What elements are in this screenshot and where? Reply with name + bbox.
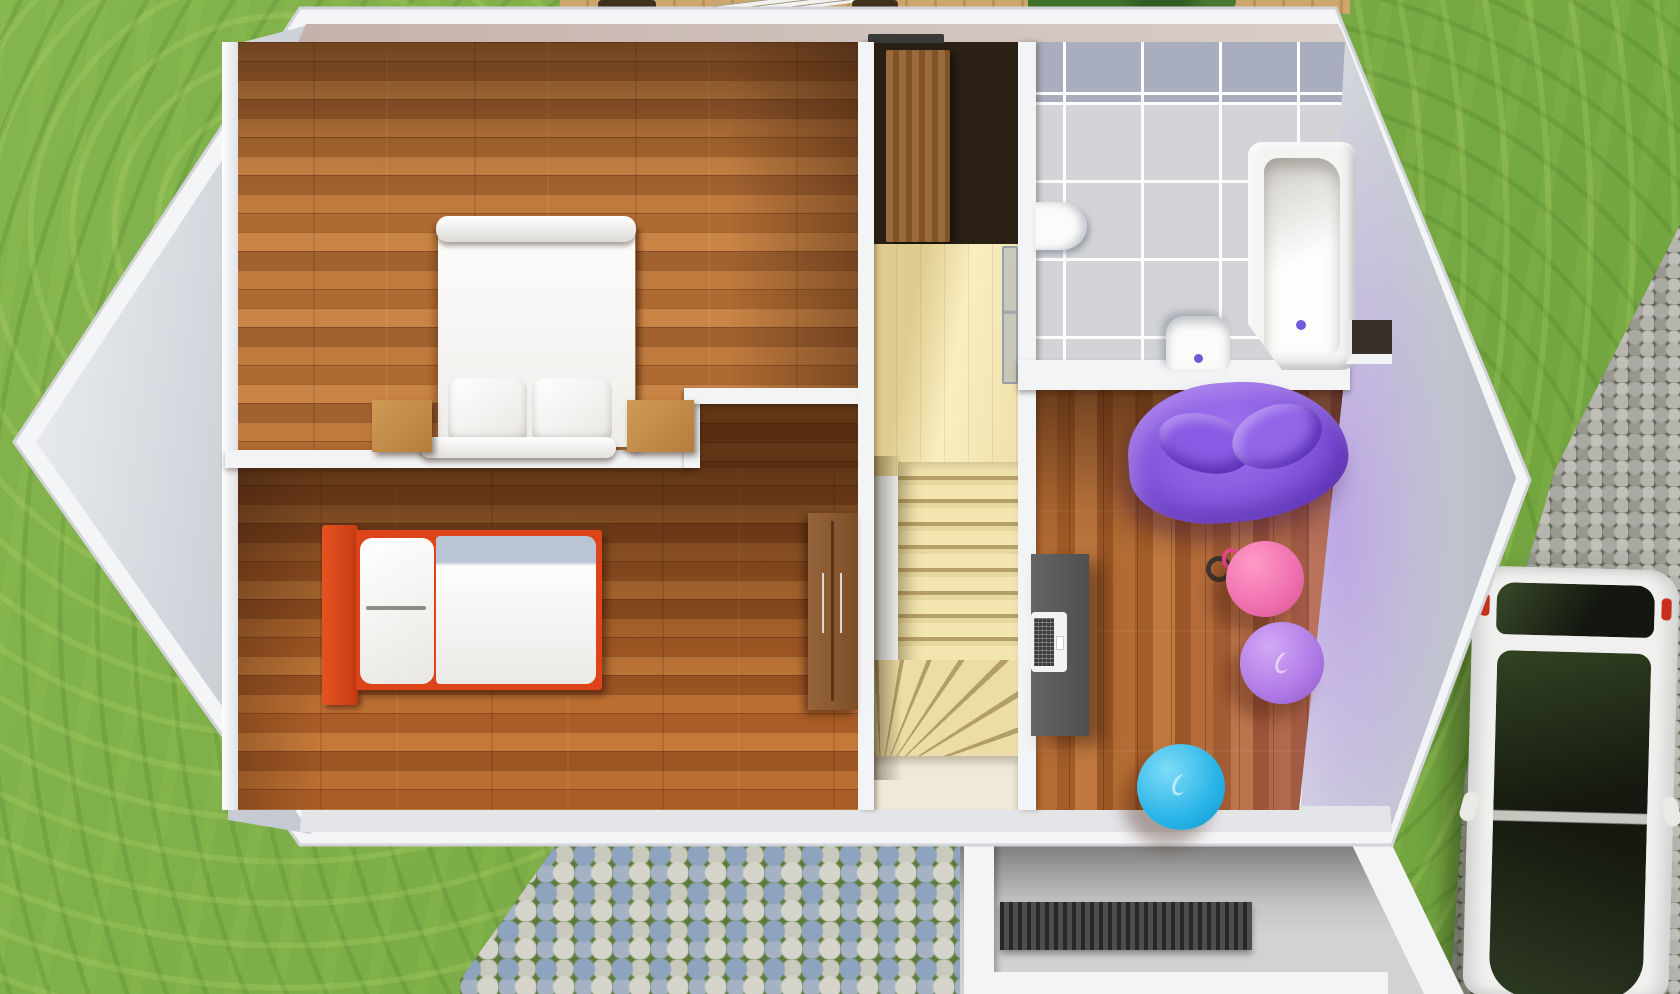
gym-ball-pink (1226, 541, 1304, 617)
single-bed-headboard (322, 525, 358, 705)
double-bed-folded-blanket (436, 216, 636, 242)
pillow (448, 378, 527, 444)
floorplan-scene (0, 0, 1680, 994)
bean-bag-chair (1123, 374, 1352, 529)
single-bed-pillow (360, 538, 434, 684)
bathroom-sink (1035, 202, 1087, 250)
pillow (532, 378, 612, 444)
bathtub-drain (1296, 320, 1306, 330)
nightstand-left (372, 400, 432, 452)
laptop (1031, 612, 1067, 672)
top-wall-inner-face (298, 24, 1346, 42)
laptop-trackpad (1056, 636, 1064, 650)
gym-ball-seam (1169, 772, 1191, 798)
nightstand-right (627, 400, 694, 452)
bathroom-wall-niche (1346, 320, 1392, 364)
gym-ball-seam (1272, 650, 1294, 676)
wall-stairhall-left (858, 42, 874, 810)
double-bed-headboard (420, 437, 616, 458)
staircase-steps (898, 462, 1018, 678)
laptop-keyboard (1034, 618, 1054, 666)
stair-upper-landing (872, 244, 1018, 476)
deck-door-lintel (868, 34, 944, 43)
interior-wall-left (222, 42, 238, 810)
stair-glass-partition (1002, 246, 1018, 384)
toilet (1166, 316, 1230, 370)
gym-ball-purple (1240, 622, 1324, 704)
single-bed-duvet (436, 536, 596, 684)
stair-shadow (872, 456, 902, 780)
closet-wardrobe (886, 50, 950, 242)
wooden-dresser (808, 513, 858, 710)
toilet-flush-button (1194, 354, 1203, 363)
gym-ball-blue (1137, 744, 1225, 830)
room-bedroom-single-floor-alcove (700, 404, 858, 468)
bathtub (1248, 142, 1356, 370)
wall-notch-horizontal (684, 388, 860, 404)
